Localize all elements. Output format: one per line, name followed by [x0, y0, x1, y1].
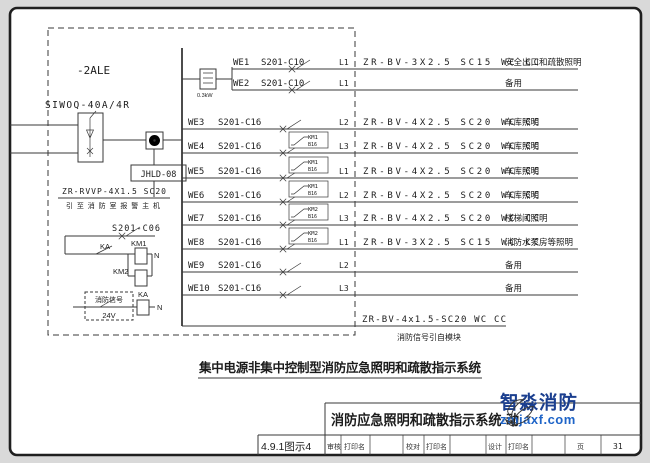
fire-signal-voltage: 24V: [102, 311, 115, 320]
circuit-id: WE4: [188, 142, 204, 152]
signal-module-label: JHLD-08: [141, 170, 177, 180]
circuit-phase: L1: [339, 167, 349, 176]
signal-cable-label: ZR-BV-4x1.5-SC20 WC CC: [362, 315, 506, 325]
circuit-breaker: S201-C16: [218, 261, 261, 271]
figure-number: 4.9.1图示4: [261, 441, 311, 453]
circuit-desc: 安全出口和疏散照明: [505, 57, 582, 67]
contactor-sub-ref: B16: [308, 167, 317, 173]
contactor-sub-ref: B16: [308, 191, 317, 197]
contactor2-coil-label: KM2: [113, 267, 128, 276]
contactor-ref: KM1: [308, 160, 318, 166]
relay-coil-label: KA: [138, 290, 148, 299]
circuit-breaker: S201-C16: [218, 238, 261, 248]
design-print-name: 打印名: [508, 442, 529, 451]
circuit-breaker: S201-C16: [218, 167, 261, 177]
contactor-sub-ref: B16: [308, 142, 317, 148]
control-breaker-label: S201-C06: [112, 224, 160, 234]
circuit-id: WE7: [188, 214, 204, 224]
design-label: 设计: [488, 442, 502, 451]
module-destination-label: 引至消防室报警主机: [66, 201, 160, 210]
circuit-desc: 车库照明: [505, 190, 539, 200]
circuit-phase: L1: [339, 238, 349, 247]
circuit-breaker: S201-C16: [218, 142, 261, 152]
review-print-name: 打印名: [344, 442, 365, 451]
neutral-label-2: N: [157, 303, 162, 312]
diagram-caption: 集中电源非集中控制型消防应急照明和疏散指示系统: [198, 360, 481, 375]
circuit-id: WE8: [188, 238, 204, 248]
contactor-ref: KM1: [308, 184, 318, 190]
circuit-desc: 车库照明: [505, 117, 539, 127]
circuit-id: WE2: [233, 79, 249, 89]
circuit-id: WE5: [188, 167, 204, 177]
circuit-id: WE9: [188, 261, 204, 271]
page-number: 31: [613, 442, 623, 451]
relay-contact-label: KA: [100, 242, 110, 251]
scanned-drawing-page: -2ALE SIWOQ-40A/4R JHLD-08 ZR-RVVP-4X1.5…: [0, 0, 650, 463]
circuit-phase: L1: [339, 79, 349, 88]
circuit-id: WE6: [188, 191, 204, 201]
circuit-phase: L3: [339, 214, 349, 223]
circuit-desc: 备用: [505, 283, 522, 293]
circuit-breaker: S201-C16: [218, 191, 261, 201]
circuit-breaker: S201-C16: [218, 214, 261, 224]
circuit-desc: 楼梯间照明: [505, 213, 548, 223]
circuit-phase: L2: [339, 118, 349, 127]
fire-signal-label: 消防信号: [95, 295, 123, 304]
circuit-breaker: S201-C10: [261, 79, 304, 89]
circuit-id: WE10: [188, 284, 210, 294]
circuit-phase: L3: [339, 142, 349, 151]
circuit-phase: L2: [339, 191, 349, 200]
signal-cable-note: 消防信号引自模块: [397, 332, 461, 342]
main-breaker-label: SIWOQ-40A/4R: [45, 100, 129, 111]
contactor-ref: KM2: [308, 207, 318, 213]
review-label: 审核: [327, 442, 341, 451]
circuit-id: WE1: [233, 58, 249, 68]
circuit-breaker: S201-C16: [218, 284, 261, 294]
sheet-title: 消防应急照明和疏散指示系统·动: [331, 412, 519, 428]
circuit-id: WE3: [188, 118, 204, 128]
proof-print-name: 打印名: [426, 442, 447, 451]
contactor-ref: KM2: [308, 231, 318, 237]
watermark: 智淼消防 zmjaxf.com: [500, 394, 578, 426]
circuit-desc: 消防水泵房等照明: [505, 237, 573, 247]
watermark-logo-icon: [500, 394, 538, 432]
neutral-label: N: [154, 251, 159, 260]
contactor1-coil-label: KM1: [131, 239, 146, 248]
contactor-sub-ref: B16: [308, 214, 317, 220]
proof-label: 校对: [406, 442, 420, 451]
panel-name: -2ALE: [77, 64, 110, 77]
page-label: 页: [577, 443, 584, 451]
circuit-desc: 备用: [505, 78, 522, 88]
circuit-phase: L1: [339, 58, 349, 67]
contactor-sub-ref: B16: [308, 238, 317, 244]
circuit-phase: L3: [339, 284, 349, 293]
contactor-ref: KM1: [308, 135, 318, 141]
circuit-desc: 车库照明: [505, 141, 539, 151]
circuit-phase: L2: [339, 261, 349, 270]
inverter-rating: 0.3kW: [197, 93, 213, 99]
circuit-breaker: S201-C16: [218, 118, 261, 128]
circuit-desc: 车库照明: [505, 166, 539, 176]
circuit-breaker: S201-C10: [261, 58, 304, 68]
circuit-desc: 备用: [505, 260, 522, 270]
module-cable-label: ZR-RVVP-4X1.5 SC20: [62, 187, 166, 196]
